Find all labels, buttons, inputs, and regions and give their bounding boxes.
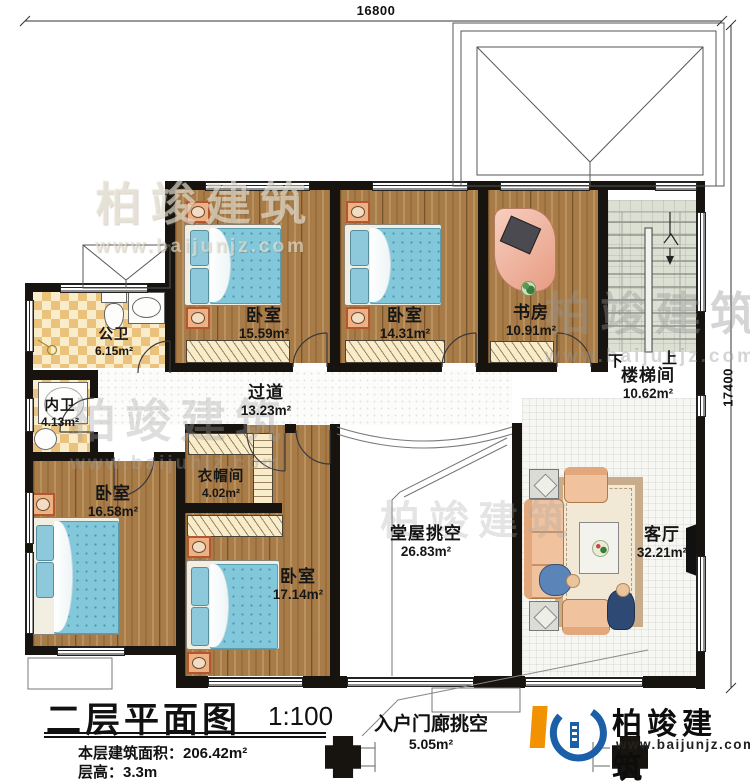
pillow: [190, 230, 209, 266]
nightstand: [31, 493, 55, 516]
window: [372, 181, 468, 191]
label-bedroom-top-left: 卧室 15.59m²: [209, 306, 319, 342]
plant-icon: [521, 281, 536, 296]
label-living: 客厅 32.21m²: [602, 525, 722, 561]
wardrobe: [490, 341, 554, 363]
wall-bedrooms-divider-2: [478, 181, 488, 372]
window: [57, 646, 125, 656]
wall-hall-living: [512, 423, 522, 688]
window: [25, 552, 34, 634]
nightstand: [186, 201, 210, 223]
wall-cloak-bottom: [182, 503, 282, 513]
nightstand: [187, 536, 211, 558]
pillow: [190, 268, 209, 304]
wall-innerbath-right-a: [90, 380, 98, 398]
wall-bath-divider: [25, 370, 98, 380]
pillow: [350, 230, 369, 266]
label-bedroom-top-mid: 卧室 14.31m²: [350, 306, 460, 342]
label-stairwell: 楼梯间 10.62m²: [598, 366, 698, 402]
dimension-right: 17400: [721, 356, 736, 420]
wall-hall-left: [330, 424, 340, 688]
wall-bottom-b: [303, 676, 347, 688]
label-public-bath: 公卫 6.15m²: [59, 327, 169, 358]
wall-bottom-a: [176, 676, 208, 688]
wall-innerbath-right-b: [90, 432, 98, 452]
wall-corridor-top-c: [476, 363, 557, 372]
floor-stairwell: [608, 200, 696, 352]
label-porch-void: 入户门廊挑空 5.05m²: [346, 714, 516, 752]
plan-scale: 1:100: [268, 701, 333, 732]
sink: [132, 297, 161, 318]
lamp-table: [529, 469, 559, 499]
sink: [34, 428, 57, 450]
lamp-icon: [533, 473, 557, 497]
wall-corridor-top-a: [165, 363, 293, 372]
bed: [31, 517, 120, 635]
wall-corridor-top-b: [327, 363, 442, 372]
floor-plan: 卧室 15.59m² 卧室 14.31m² 书房 10.91m² 楼梯间 10.…: [0, 0, 750, 781]
pillow: [36, 525, 54, 561]
cloak-wardrobe-top: [188, 433, 254, 455]
label-hall-void: 堂屋挑空 26.83m²: [361, 524, 491, 560]
wardrobe: [187, 515, 283, 537]
wall-bedroom-bl-top-a: [25, 452, 114, 461]
window: [25, 300, 34, 352]
nightstand: [186, 307, 210, 329]
wardrobe: [186, 340, 290, 363]
person-head: [566, 574, 580, 588]
window: [655, 181, 697, 191]
pillow: [191, 567, 209, 606]
logo-icon: [530, 706, 604, 758]
window: [696, 212, 706, 312]
window: [500, 181, 590, 191]
window: [25, 492, 34, 544]
window: [205, 181, 310, 191]
wall-study-stair: [598, 181, 608, 372]
label-cloakroom: 衣帽间 4.02m²: [166, 469, 276, 500]
label-bedroom-bottom-left: 卧室 16.58m²: [58, 484, 168, 520]
nightstand: [346, 201, 370, 223]
window: [60, 283, 148, 293]
wall-bottom-d: [643, 676, 705, 688]
roof-outline: [453, 23, 724, 186]
label-corridor: 过道 13.23m²: [211, 383, 321, 419]
stair-up-label: 上: [662, 347, 677, 368]
pillow: [191, 607, 209, 646]
logo-website: www.baijunjz.com: [616, 737, 750, 752]
small-roof-outline: [83, 245, 170, 288]
toilet-tank: [101, 292, 127, 303]
lamp-table: [529, 601, 559, 631]
wall-bedrooms-divider-1: [330, 181, 340, 372]
lamp-icon: [533, 605, 557, 629]
person-head: [616, 583, 630, 597]
bed: [184, 224, 282, 306]
person-standing: [607, 590, 635, 630]
title-underline: [44, 732, 326, 738]
bed: [344, 224, 442, 306]
loveseat: [562, 599, 610, 635]
pillow: [350, 268, 369, 304]
dimension-top: 16800: [340, 3, 412, 18]
person-sitting: [539, 564, 572, 596]
wall-suite-top-a: [185, 424, 247, 433]
pillow: [36, 562, 54, 598]
label-inner-bath: 内卫 4.13m²: [20, 398, 100, 429]
armchair: [564, 467, 608, 503]
label-study: 书房 10.91m²: [476, 303, 586, 339]
nightstand: [187, 652, 211, 674]
window: [696, 556, 706, 652]
floor-area-note: 本层建筑面积：206.42m²: [78, 742, 247, 763]
window: [208, 677, 303, 687]
floor-height-note: 层高：3.3m: [78, 761, 157, 781]
label-bedroom-bottom-mid: 卧室 17.14m²: [243, 567, 353, 603]
wall-bottom-c: [474, 676, 525, 688]
stair-down-label: 下: [608, 350, 623, 371]
wardrobe: [345, 340, 445, 363]
wall-suite-top-b: [285, 424, 296, 433]
window: [347, 677, 474, 687]
window: [525, 677, 643, 687]
